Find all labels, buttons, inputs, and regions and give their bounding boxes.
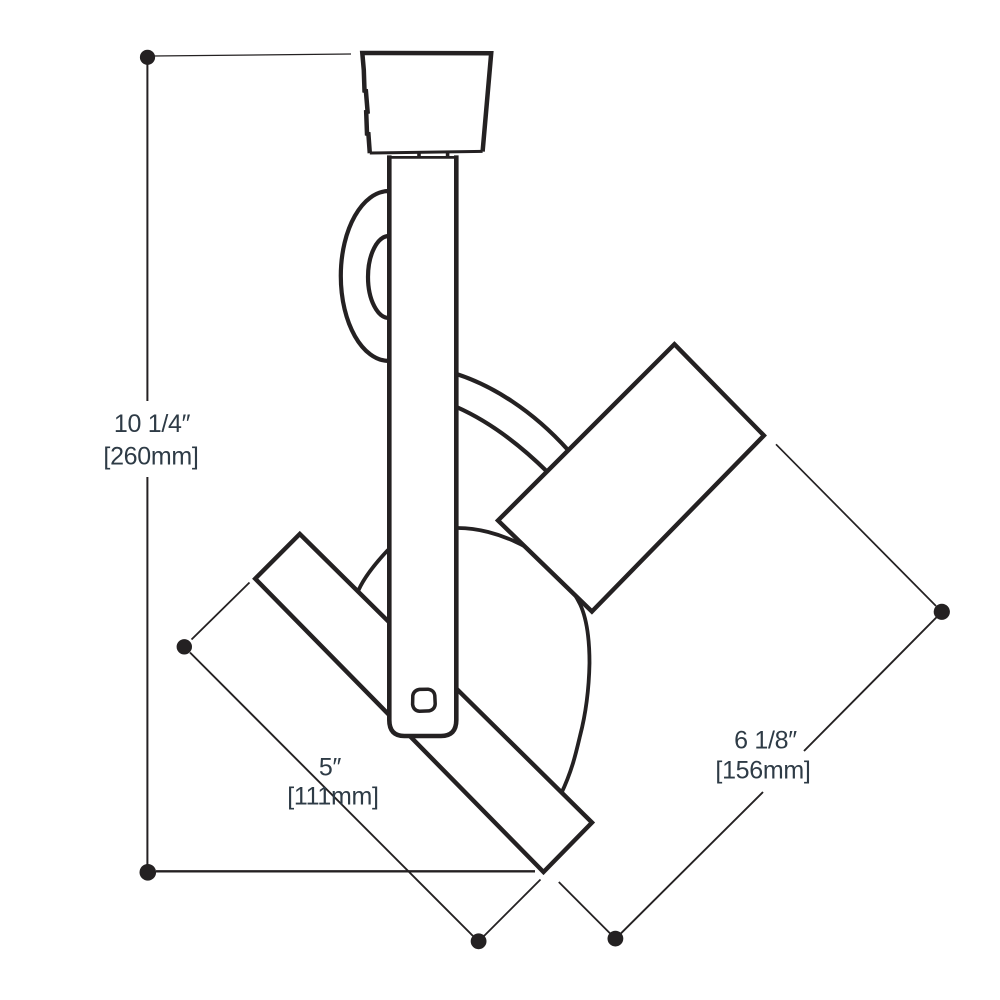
svg-text:5″: 5″ bbox=[319, 754, 342, 782]
svg-text:[156mm]: [156mm] bbox=[715, 757, 810, 785]
svg-text:6 1/8″: 6 1/8″ bbox=[734, 727, 797, 755]
svg-text:[111mm]: [111mm] bbox=[287, 783, 378, 811]
svg-text:10 1/4″: 10 1/4″ bbox=[114, 410, 191, 438]
svg-text:[260mm]: [260mm] bbox=[103, 443, 198, 471]
